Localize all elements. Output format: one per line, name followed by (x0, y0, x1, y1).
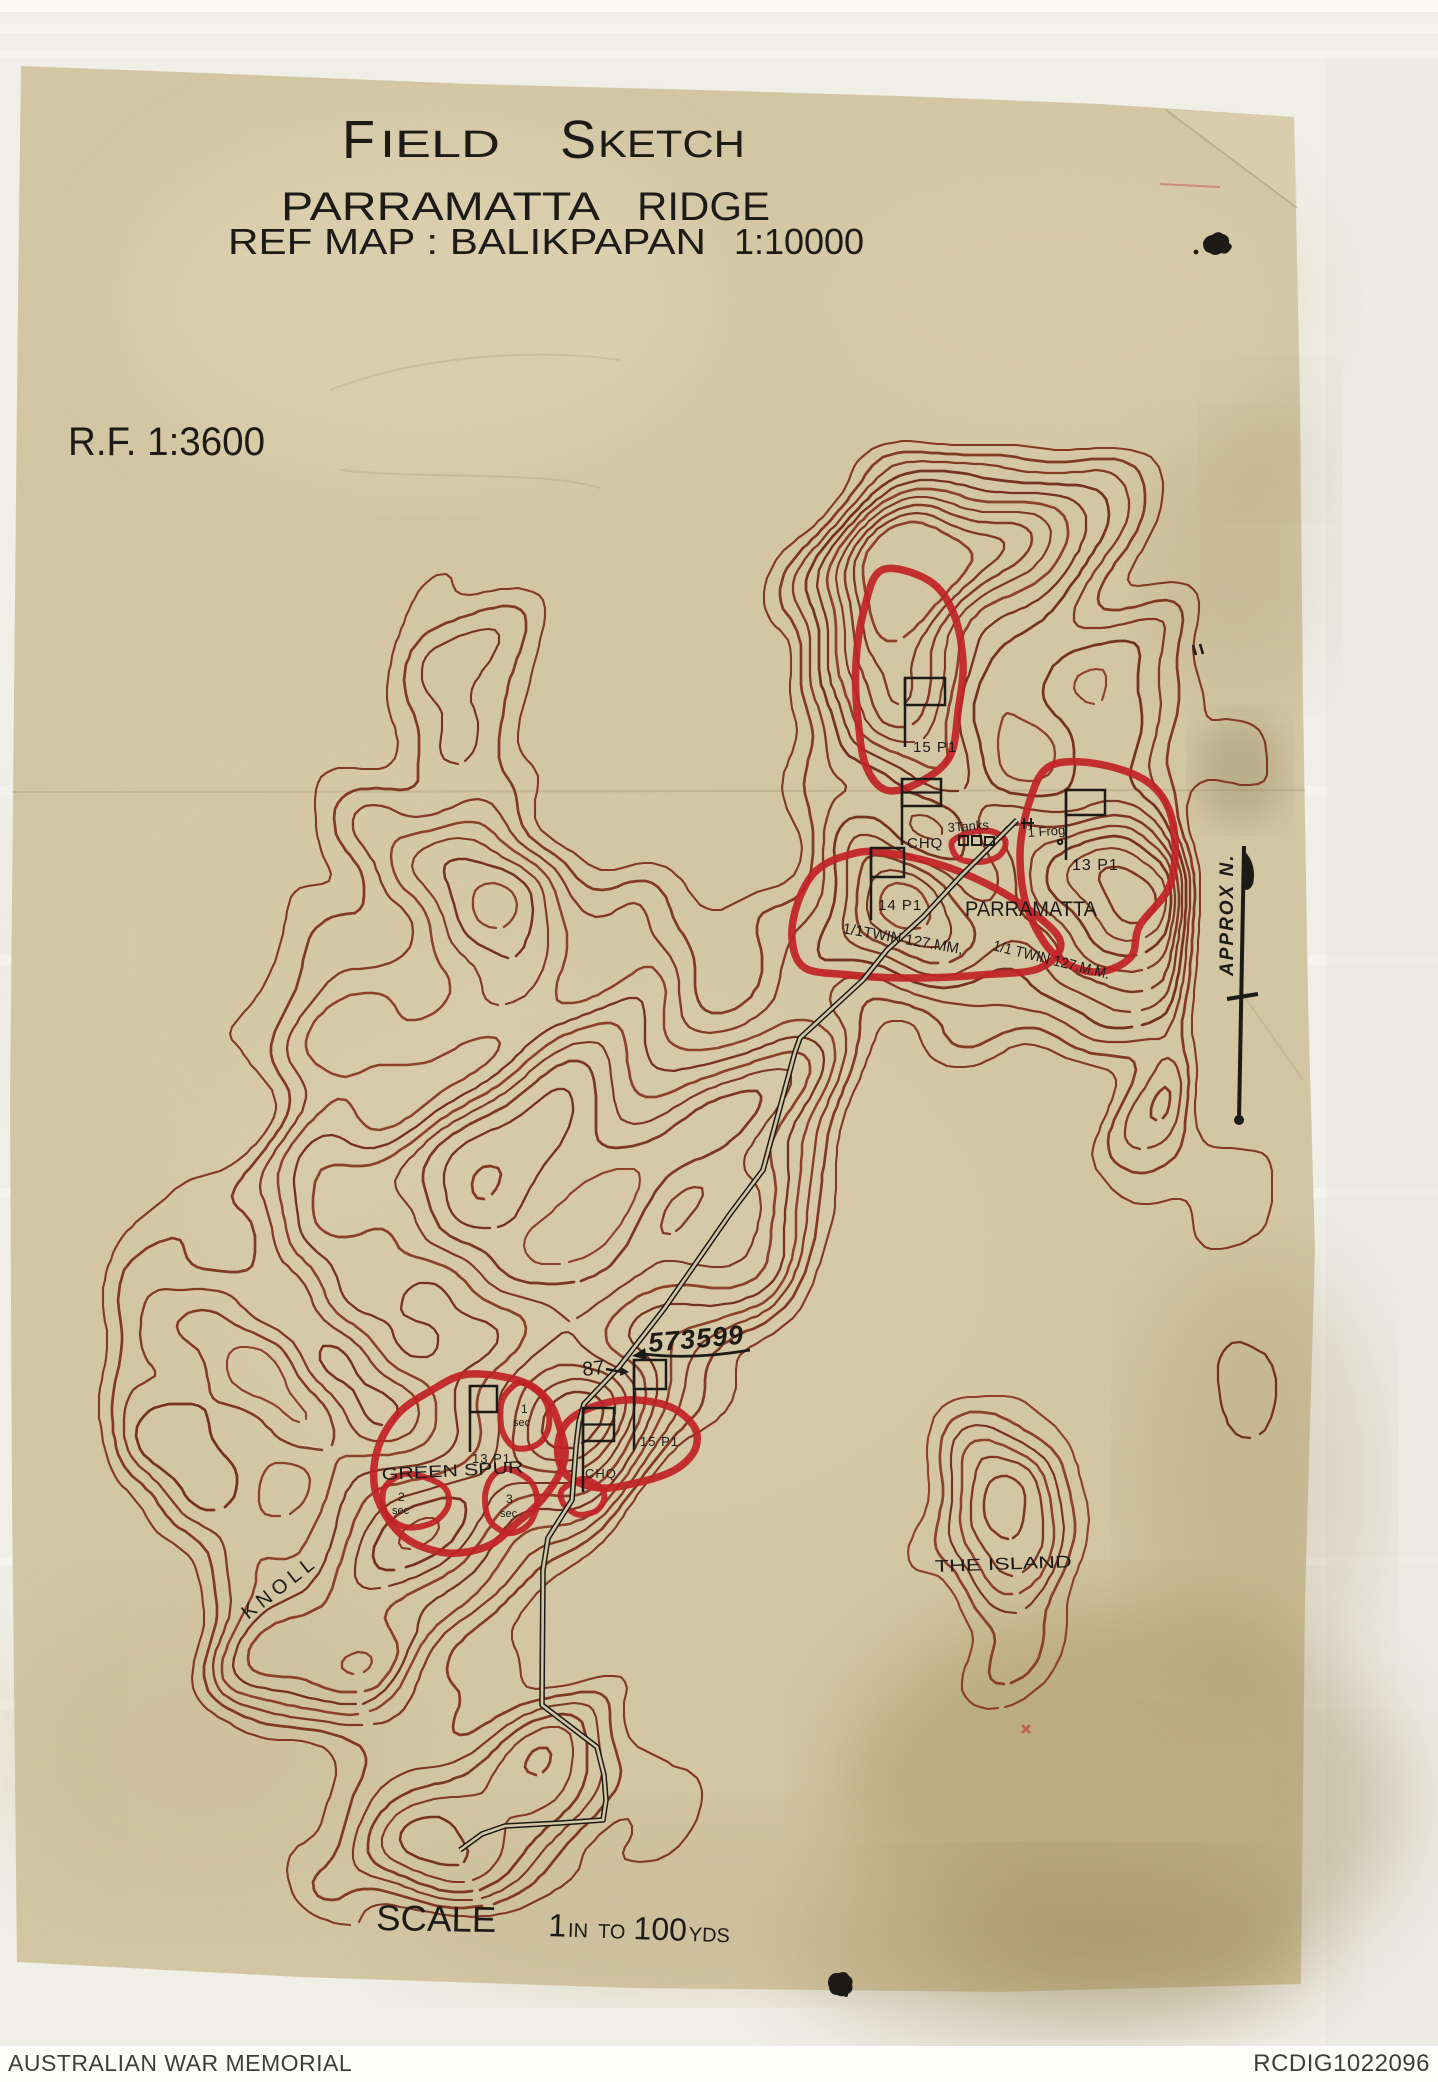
svg-text:13 P1: 13 P1 (1072, 857, 1119, 874)
svg-text:sec: sec (500, 1508, 518, 1520)
svg-text:PARRAMATTA: PARRAMATTA (965, 898, 1097, 921)
svg-text:CHQ: CHQ (585, 1466, 617, 1481)
svg-text:AUSTRALIAN WAR MEMORIAL: AUSTRALIAN WAR MEMORIAL (8, 2050, 352, 2076)
svg-text:3Tanks: 3Tanks (947, 817, 990, 835)
svg-text:87: 87 (581, 1357, 605, 1381)
svg-text:KETCH: KETCH (598, 124, 745, 166)
svg-text:SCALE: SCALE (376, 1897, 497, 1940)
svg-text:15 P1: 15 P1 (640, 1434, 679, 1449)
svg-text:RCDIG1022096: RCDIG1022096 (1253, 2050, 1430, 2077)
svg-text:APPROX N.: APPROX N. (1217, 853, 1238, 977)
svg-text:S: S (560, 110, 596, 170)
svg-text:R.F. 1:3600: R.F. 1:3600 (68, 420, 265, 464)
svg-text:F: F (342, 110, 375, 170)
svg-text:2: 2 (398, 1490, 405, 1504)
svg-text:1:10000: 1:10000 (734, 221, 864, 262)
svg-text:CHQ: CHQ (907, 835, 943, 852)
svg-text:IELD: IELD (380, 124, 500, 166)
svg-text:sec: sec (513, 1417, 531, 1429)
svg-text:15 P1: 15 P1 (913, 739, 957, 756)
svg-text:1 Frog: 1 Frog (1027, 822, 1066, 840)
svg-text:sec: sec (392, 1505, 410, 1517)
svg-text:1: 1 (521, 1402, 528, 1416)
svg-text:3: 3 (506, 1492, 513, 1506)
svg-text:14 P1: 14 P1 (878, 897, 922, 914)
svg-text:REF MAP : BALIKPAPAN: REF MAP : BALIKPAPAN (228, 221, 706, 262)
